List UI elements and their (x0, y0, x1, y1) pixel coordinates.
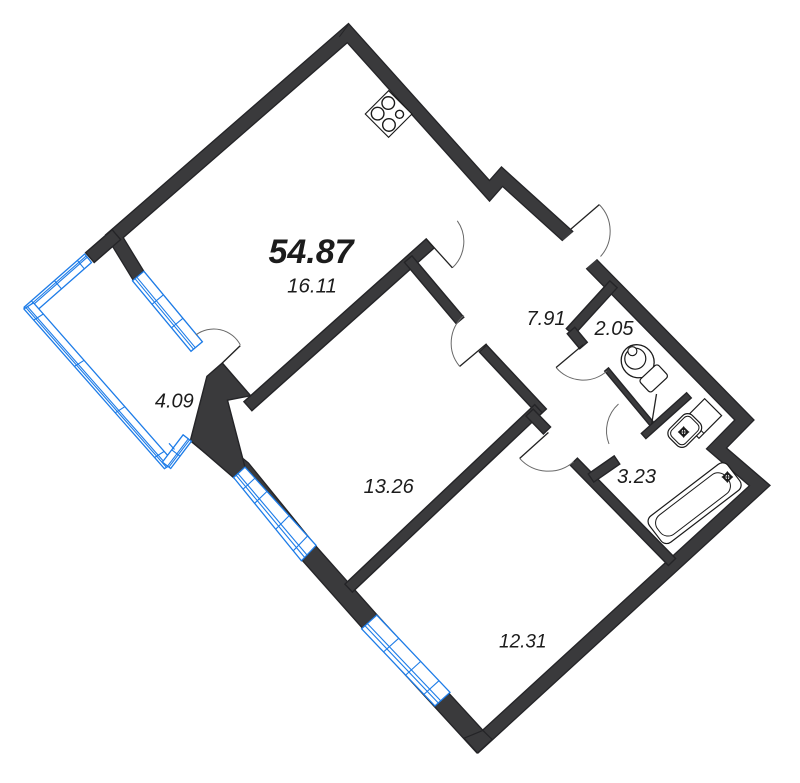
svg-text:3.23: 3.23 (617, 466, 656, 488)
svg-text:4.09: 4.09 (155, 391, 194, 413)
svg-text:16.11: 16.11 (287, 275, 337, 298)
svg-text:2.05: 2.05 (594, 318, 635, 340)
svg-text:54.87: 54.87 (268, 233, 355, 271)
svg-text:12.31: 12.31 (499, 632, 547, 653)
svg-text:13.26: 13.26 (364, 476, 415, 498)
svg-text:7.91: 7.91 (527, 308, 566, 330)
